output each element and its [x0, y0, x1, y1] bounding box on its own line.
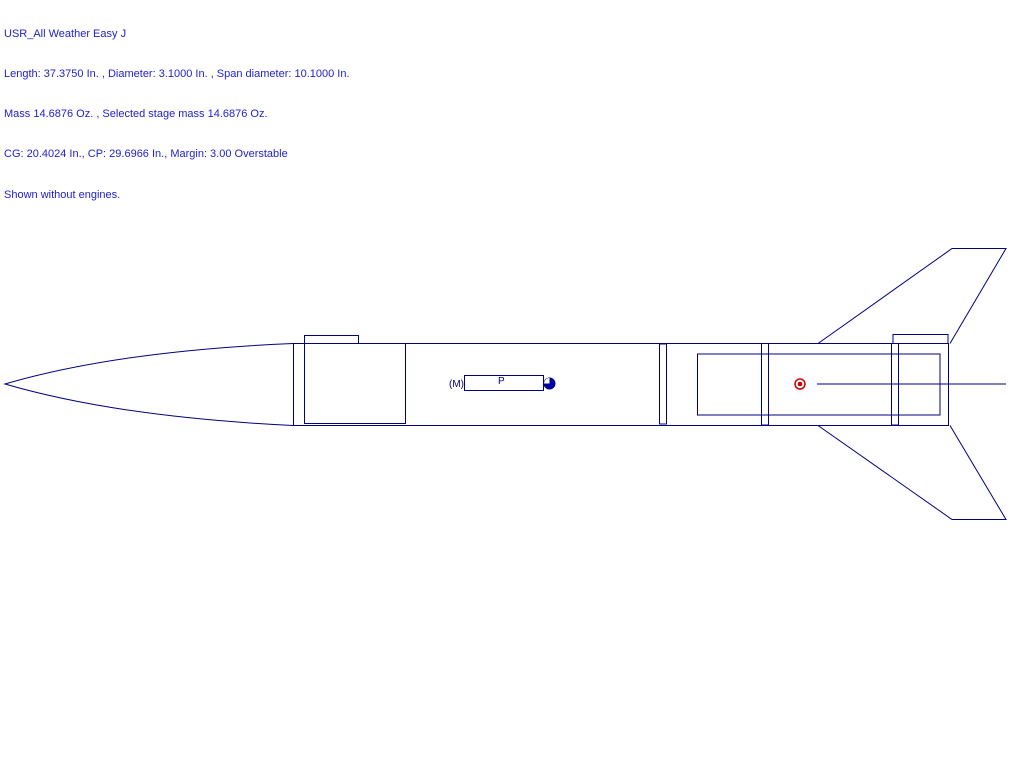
mass-object-label[interactable]: (M) — [449, 379, 464, 390]
centering-ring-2[interactable] — [762, 344, 769, 426]
design-view-canvas: USR_All Weather Easy J Length: 37.3750 I… — [0, 0, 1024, 768]
cp-marker — [795, 379, 805, 389]
fin-lower[interactable] — [818, 426, 1006, 520]
centering-ring-1[interactable] — [660, 344, 667, 424]
payload-bay[interactable] — [305, 344, 406, 424]
rocket-side-view: (M) P — [0, 0, 1024, 768]
cg-marker — [544, 378, 555, 389]
fin-upper[interactable] — [818, 249, 1006, 344]
launch-lug-aft[interactable] — [893, 335, 948, 344]
nose-cone[interactable] — [5, 344, 293, 426]
parachute-label: P — [498, 376, 505, 387]
launch-lug-forward[interactable] — [305, 336, 359, 344]
